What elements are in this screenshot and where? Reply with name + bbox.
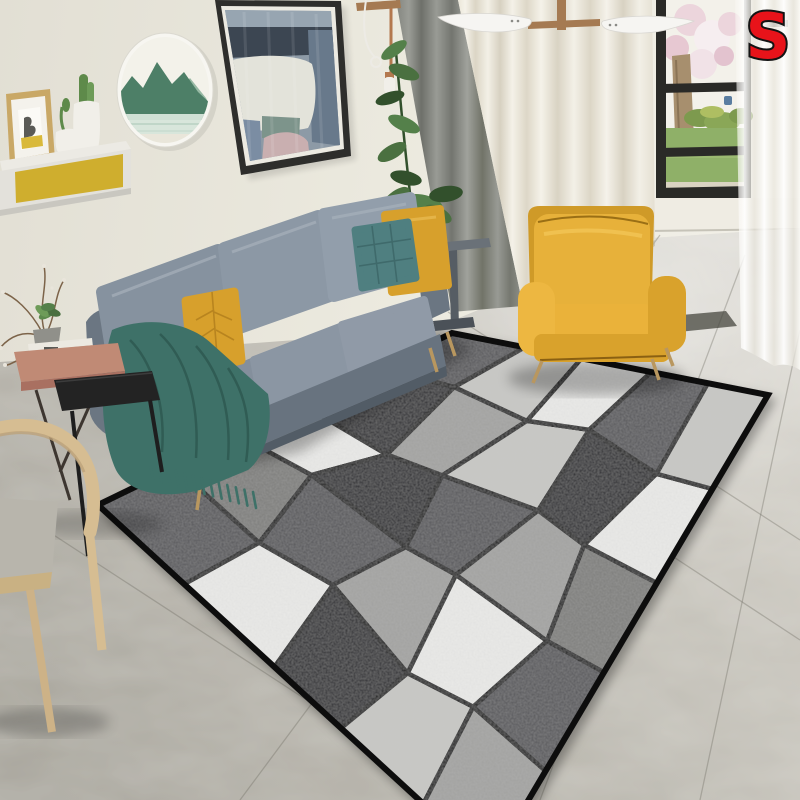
size-badge: S [746,0,789,73]
sprig-leaf [62,98,70,112]
blade-dot [517,20,520,23]
pendant-bulb [384,77,395,93]
blade-dot [511,20,514,23]
living-room-product-photo: S [0,0,800,800]
frame-bottom [656,186,751,200]
blade-dot [615,24,618,27]
scene-canvas: S [0,0,800,800]
chair-seat-cushion [0,498,58,580]
blossom-cluster [687,49,717,79]
garden-figure [724,96,732,105]
blossom-cluster [714,46,734,66]
cactus-arm [87,82,94,104]
pillow-teal-quilted [355,222,416,288]
blade-dot [609,24,612,27]
